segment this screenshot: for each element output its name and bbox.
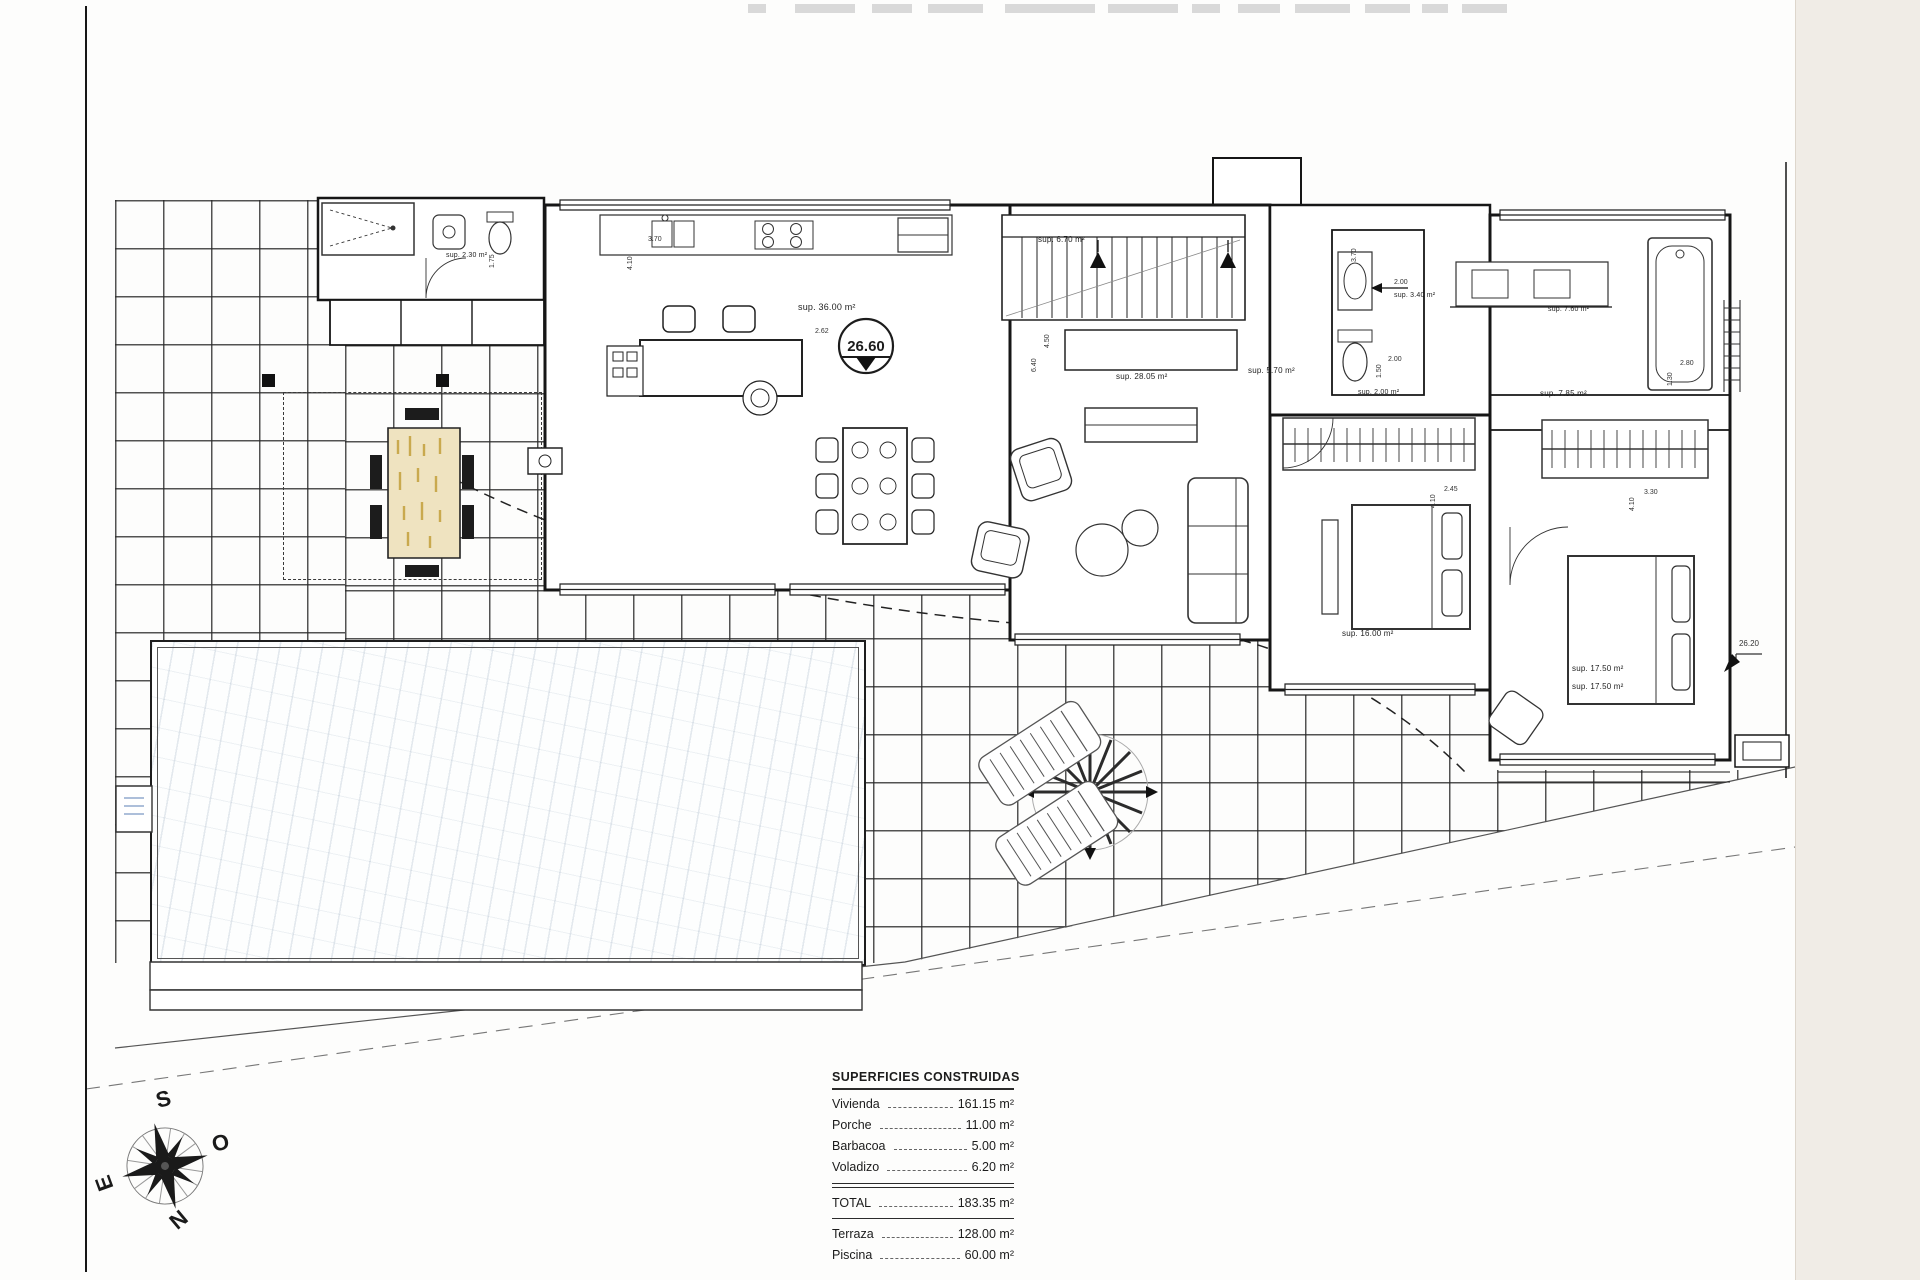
dotted-leader xyxy=(894,1149,967,1150)
dimension-label: 1.50 xyxy=(1376,364,1383,378)
dimension-label: 2.62 xyxy=(815,328,829,335)
row-value: 128.00 m² xyxy=(958,1227,1014,1241)
table-divider-single xyxy=(832,1218,1014,1219)
dining-table xyxy=(816,428,934,544)
row-label: Porche xyxy=(832,1118,872,1132)
kitchen-counter xyxy=(600,215,952,255)
row-value: 6.20 m² xyxy=(972,1160,1014,1174)
dimension-label: 4.10 xyxy=(627,256,634,270)
room-label-kitchen: sup. 36.00 m² xyxy=(798,302,856,312)
dotted-leader xyxy=(879,1206,953,1207)
dotted-leader xyxy=(882,1237,953,1238)
dimension-label: 4.10 xyxy=(1629,497,1636,511)
compass-letter-north: N xyxy=(164,1205,192,1234)
room-label-bath1: sup. 2.30 m² xyxy=(446,252,487,259)
room-label-hall: sup. 5.70 m² xyxy=(1248,366,1295,375)
room-label-laundry: sup. 2.00 m² xyxy=(1358,389,1399,396)
room-label-bath2: sup. 7.60 m² xyxy=(1548,306,1589,313)
compass-rose: S O E N xyxy=(92,1086,242,1236)
dotted-leader xyxy=(880,1128,961,1129)
room-label-bedroom2a: sup. 17.50 m² xyxy=(1572,664,1624,673)
table-row: Porche 11.00 m² xyxy=(832,1118,1014,1132)
dimension-label: 3.70 xyxy=(648,236,662,243)
areas-table: SUPERFICIES CONSTRUIDAS Vivienda 161.15 … xyxy=(832,1070,1014,1269)
compass-letter-east: E xyxy=(92,1172,118,1194)
row-value: 60.00 m² xyxy=(965,1248,1014,1262)
compass-letter-west: O xyxy=(209,1128,232,1156)
dimension-label: 6.40 xyxy=(1031,358,1038,372)
row-value: 11.00 m² xyxy=(966,1118,1014,1132)
row-value: 5.00 m² xyxy=(972,1139,1014,1153)
dimension-label: 2.00 xyxy=(1394,279,1408,286)
table-divider-double xyxy=(832,1183,1014,1188)
table-row: Vivienda 161.15 m² xyxy=(832,1097,1014,1111)
pool-walkway xyxy=(150,962,862,1010)
room-label-living: sup. 28.05 m² xyxy=(1116,372,1168,381)
table-row: Voladizo 6.20 m² xyxy=(832,1160,1014,1174)
row-label: Barbacoa xyxy=(832,1139,886,1153)
pool-skimmer xyxy=(116,786,152,832)
dimension-label: 1.30 xyxy=(1667,372,1674,386)
table-row: Piscina 60.00 m² xyxy=(832,1248,1014,1262)
dimension-label: 3.70 xyxy=(1351,248,1358,262)
row-label: Voladizo xyxy=(832,1160,879,1174)
room-label-bedroom2b: sup. 17.50 m² xyxy=(1572,682,1624,691)
dotted-leader xyxy=(887,1170,966,1171)
dimension-label: 1.75 xyxy=(489,254,496,268)
compass-letter-south: S xyxy=(153,1086,173,1113)
dimension-label: 4.10 xyxy=(1430,494,1437,508)
table-row-total: TOTAL 183.35 m² xyxy=(832,1196,1014,1210)
room-label-hall2: sup. 7.85 m² xyxy=(1540,389,1587,398)
porch-columns xyxy=(262,374,449,387)
level-value-terrace: 26.20 xyxy=(1739,639,1760,648)
dimension-label: 2.80 xyxy=(1680,360,1694,367)
row-value: 161.15 m² xyxy=(958,1097,1014,1111)
room-label-stairs: sup. 6.70 m² xyxy=(1038,235,1085,244)
floor-plan-sheet: 26.60 26.20 S O E N sup. 2.30 m² sup. 36… xyxy=(0,0,1920,1280)
sheet-margin-right xyxy=(1795,0,1920,1280)
table-row: Barbacoa 5.00 m² xyxy=(832,1139,1014,1153)
dimension-label: 3.30 xyxy=(1644,489,1658,496)
areas-table-title: SUPERFICIES CONSTRUIDAS xyxy=(832,1070,1014,1090)
dimension-label: 2.45 xyxy=(1444,486,1458,493)
dotted-leader xyxy=(880,1258,959,1259)
outdoor-dining-table xyxy=(370,408,562,577)
table-row: Terraza 128.00 m² xyxy=(832,1227,1014,1241)
level-value-main: 26.60 xyxy=(847,338,885,355)
sheet-frame-left xyxy=(85,6,87,1272)
dimension-label: 4.50 xyxy=(1044,334,1051,348)
dimension-label: 2.00 xyxy=(1388,356,1402,363)
row-value: 183.35 m² xyxy=(958,1196,1014,1210)
dotted-leader xyxy=(888,1107,953,1108)
row-label: Terraza xyxy=(832,1227,874,1241)
row-label: TOTAL xyxy=(832,1196,871,1210)
row-label: Vivienda xyxy=(832,1097,880,1111)
room-label-wc: sup. 3.40 m² xyxy=(1394,292,1435,299)
room-label-bedroom1: sup. 16.00 m² xyxy=(1342,629,1394,638)
row-label: Piscina xyxy=(832,1248,872,1262)
